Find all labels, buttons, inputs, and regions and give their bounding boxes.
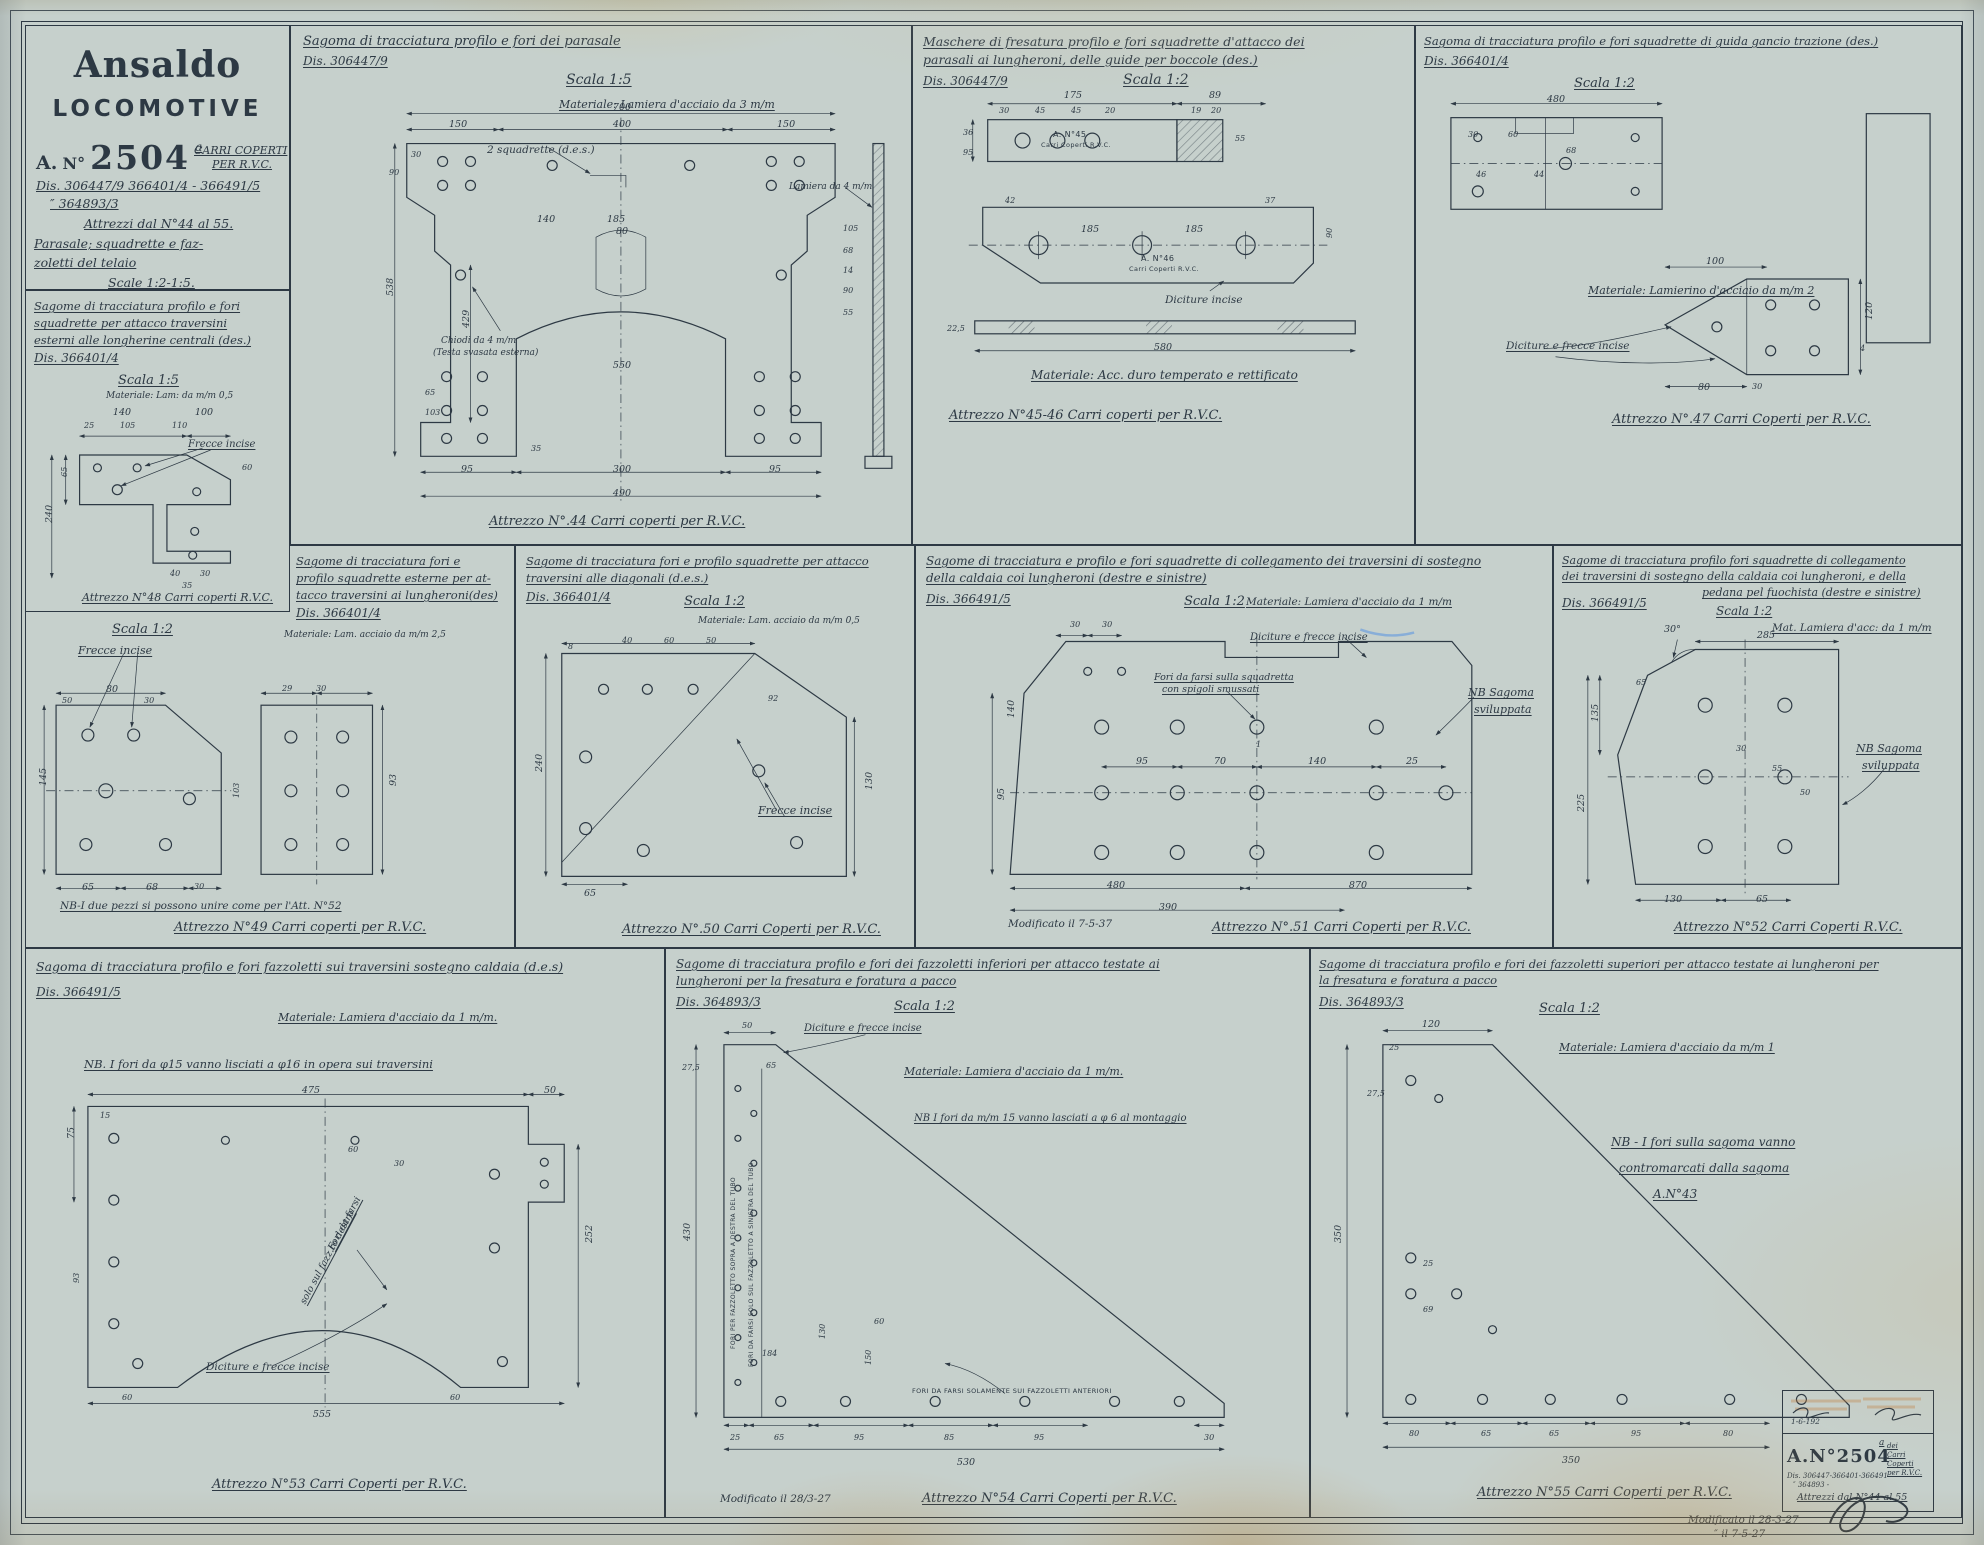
dim-label: 100 xyxy=(195,407,213,418)
dim-label: 35 xyxy=(182,581,192,590)
dim-label: 100 xyxy=(1706,256,1724,267)
dim-label: 50 xyxy=(1800,788,1810,797)
dim-label: 45 xyxy=(1035,106,1045,115)
annotation-text: parasali ai lungheroni, delle guide per … xyxy=(923,52,1258,67)
attrezzo-54-label: Attrezzo N°54 Carri Coperti per R.V.C. xyxy=(922,1491,1177,1506)
drawing-maschere xyxy=(913,26,1414,544)
annotation-text: Materiale: Lamiera d'acciaio da m/m 1 xyxy=(1559,1041,1775,1054)
dim-label: 140 xyxy=(113,407,131,418)
annotation-text: esterni alle longherine centrali (des.) xyxy=(34,333,251,347)
dim-label: 60 xyxy=(450,1393,460,1402)
panel-attrezzo-54: Sagome di tracciatura profilo e fori dei… xyxy=(665,948,1310,1518)
doc-class-line2: PER R.V.C. xyxy=(194,158,272,171)
title-block: Ansaldo LOCOMOTIVE A. N° 2504 a CARRI CO… xyxy=(25,25,290,290)
dim-label: 30 xyxy=(200,569,210,578)
dis-line-1: Dis. 306447/9 366401/4 - 366491/5 xyxy=(36,178,260,193)
annotation-text: Materiale: Lamiera d'acciaio da 3 m/m xyxy=(559,98,775,111)
dim-label: 93 xyxy=(388,774,399,786)
plate-outline xyxy=(546,644,854,885)
dim-label: 90 xyxy=(389,168,399,177)
dim-label: 105 xyxy=(843,224,858,233)
dim-label: 95 xyxy=(461,464,473,475)
plate-outline xyxy=(52,436,231,578)
annotation-text: Materiale: Lamiera d'acciaio da 1 m/m. xyxy=(278,1011,497,1024)
dim-label: 95 xyxy=(963,148,973,157)
annotation-text: la fresatura e foratura a pacco xyxy=(1319,973,1497,987)
attrezzo-49-label: Attrezzo N°49 Carri coperti per R.V.C. xyxy=(174,920,426,935)
dim-label: 30 xyxy=(1468,130,1478,139)
annotation-text: sviluppata xyxy=(1474,703,1532,716)
dim-label: 225 xyxy=(1576,794,1587,812)
annotation-text: Diciture e frecce incise xyxy=(206,1361,330,1373)
annotation-text: Lamiera da 4 m/m xyxy=(789,182,872,192)
annotation-text: Scala 1:2 xyxy=(1539,1001,1600,1016)
annotation-text: Dis. 366401/4 xyxy=(1424,54,1509,68)
annotation-text: Sagome di tracciatura fori e profilo squ… xyxy=(526,554,869,568)
dim-label: 80 xyxy=(1723,1429,1733,1438)
annotation-text: Scala 1:2 xyxy=(1184,594,1245,609)
dim-label: 55 xyxy=(843,308,853,317)
dim-label: 80 xyxy=(616,226,628,237)
dim-label: 68 xyxy=(146,882,158,893)
dim-label: 40 xyxy=(170,569,180,578)
dim-label: 30 xyxy=(394,1159,404,1168)
annotation-text: Scala 1:5 xyxy=(118,373,179,388)
panel-attrezzo-48: Sagome di tracciatura profilo e forisqua… xyxy=(25,290,290,612)
panel-attrezzo-47: Sagoma di tracciatura profilo e fori squ… xyxy=(1415,25,1962,545)
attrezzo-48-label: Attrezzo N°48 Carri coperti R.V.C. xyxy=(82,591,273,604)
dim-label: 30 xyxy=(144,696,154,705)
annotation-text: Chiodi da 4 m/m xyxy=(441,336,516,346)
dim-label: 50 xyxy=(544,1085,556,1096)
blank-bar xyxy=(1866,114,1930,343)
dim-label: 27,5 xyxy=(1367,1089,1385,1098)
annotation-text: Materiale: Lam: da m/m 0,5 xyxy=(106,391,233,401)
annotation-text: tacco traversini ai lungheroni(des) xyxy=(296,588,498,602)
annotation-text: (Testa svasata esterna) xyxy=(433,348,538,358)
annotation-text: Materiale: Lam. acciaio da m/m 2,5 xyxy=(284,630,446,640)
mod-line-1: Modificato il 28-3-27 xyxy=(1688,1514,1799,1528)
dim-label: 103 xyxy=(425,408,440,417)
panel-attrezzo-51: Sagome di tracciatura e profilo e fori s… xyxy=(915,545,1553,948)
dim-label: 90 xyxy=(1325,228,1334,238)
dim-label: 130 xyxy=(818,1324,827,1339)
side-section xyxy=(845,144,892,469)
annotation-text: Carri Coperti R.V.C. xyxy=(1129,265,1199,273)
dim-label: 475 xyxy=(302,1085,320,1096)
annotation-text: Scala 1:2 xyxy=(684,594,745,609)
annotation-text: Modificato il 28/3-27 xyxy=(720,1493,831,1505)
dim-label: 103 xyxy=(232,783,241,798)
annotation-text: Carri Coperti R.V.C. xyxy=(1041,141,1111,149)
annotation-text: Scala 1:2 xyxy=(894,999,955,1014)
annotation-text: Dis. 306447/9 xyxy=(303,54,388,68)
dim-label: 65 xyxy=(774,1433,784,1442)
plate-top xyxy=(1451,104,1662,210)
annotation-text: Sagome di tracciatura profilo e fori dei… xyxy=(1319,957,1879,971)
dim-label: 42 xyxy=(1005,196,1015,205)
annotation-text: pedana pel fuochista (destre e sinistre) xyxy=(1702,586,1921,599)
dim-label: 29 xyxy=(282,684,292,693)
annotation-text: Sagome di tracciatura profilo e fori xyxy=(34,299,240,313)
dim-label: 60 xyxy=(874,1317,884,1326)
annotation-text: FORI DA FARSI SOLAMENTE SUI FAZZOLETTI A… xyxy=(912,1387,1112,1395)
panel-attrezzo-44: Sagoma di tracciatura profilo e fori dei… xyxy=(290,25,912,545)
blue-pencil-mark xyxy=(1360,630,1414,636)
dim-label: 60 xyxy=(242,463,252,472)
dim-label: 46 xyxy=(1476,170,1486,179)
dim-label: 150 xyxy=(449,119,467,130)
plate-right xyxy=(261,693,382,884)
dim-label: 60 xyxy=(664,636,674,645)
dim-label: 252 xyxy=(584,1225,595,1243)
dim-label: 65 xyxy=(60,467,69,477)
annotation-text: NB Sagoma xyxy=(1468,686,1534,699)
annotation-text: Sagoma di tracciatura profilo e fori squ… xyxy=(1424,34,1878,48)
annotation-text: A.N°43 xyxy=(1653,1187,1697,1201)
dim-label: 80 xyxy=(106,684,118,695)
annotation-text: contromarcati dalla sagoma xyxy=(1619,1161,1789,1175)
panel-attrezzo-52: Sagome di tracciatura profilo fori squad… xyxy=(1553,545,1962,948)
dim-label: 30° xyxy=(1664,624,1681,635)
annotation-text: Sagoma di tracciatura profilo e fori dei… xyxy=(303,34,621,49)
dim-label: 700 xyxy=(613,102,631,113)
dim-label: 55 xyxy=(1772,764,1782,773)
annotation-text: Materiale: Acc. duro temperato e rettifi… xyxy=(1031,368,1298,382)
dim-label: 65 xyxy=(1756,894,1768,905)
dim-label: 150 xyxy=(777,119,795,130)
dim-label: 93 xyxy=(72,1273,81,1283)
dimension-lines xyxy=(395,114,835,497)
dim-label: 538 xyxy=(385,278,396,296)
dim-label: 60 xyxy=(1508,130,1518,139)
dim-label: 65 xyxy=(1481,1429,1491,1438)
dim-label: 65 xyxy=(1636,678,1646,687)
dim-label: 60 xyxy=(348,1145,358,1154)
dim-label: 30 xyxy=(1736,744,1746,753)
stamp-signatures: 1-6-192 xyxy=(1783,1391,1933,1434)
dim-label: 184 xyxy=(762,1349,777,1358)
annotation-text: sviluppata xyxy=(1862,759,1920,772)
dim-label: 390 xyxy=(1159,902,1177,913)
dim-label: 50 xyxy=(742,1021,752,1030)
dim-label: 240 xyxy=(534,754,545,772)
dim-label: 44 xyxy=(1534,170,1544,179)
dim-label: 95 xyxy=(1631,1429,1641,1438)
dim-label: 350 xyxy=(1562,1455,1580,1466)
annotation-text: Diciture e frecce incise xyxy=(804,1023,922,1034)
annotation-text: Scala 1:2 xyxy=(112,622,173,637)
plate-outline xyxy=(1588,640,1849,901)
dim-label: 350 xyxy=(1333,1225,1344,1243)
dim-label: 185 xyxy=(1081,224,1099,235)
annotation-text: Sagoma di tracciatura profilo e fori faz… xyxy=(36,959,563,974)
attrezzo-55-label: Attrezzo N°55 Carri Coperti per R.V.C. xyxy=(1477,1485,1732,1500)
dim-label: 30 xyxy=(1070,620,1080,629)
stamp-date: 1-6-192 xyxy=(1791,1417,1820,1426)
dim-label: 120 xyxy=(1864,302,1875,320)
dim-label: 30 xyxy=(194,882,204,891)
dim-label: 490 xyxy=(613,488,631,499)
drawing-fazzoletti-inferiori xyxy=(666,949,1309,1517)
annotation-text: Dis. 366491/5 xyxy=(36,985,121,999)
annotation-text: traversini alle diagonali (d.e.s.) xyxy=(526,571,708,585)
dim-label: 14 xyxy=(843,266,853,275)
dim-label: 4 xyxy=(1860,344,1865,353)
dim-label: 95 xyxy=(1034,1433,1044,1442)
annotation-text: Sagome di tracciatura fori e xyxy=(296,554,460,568)
panel-attrezzo-53: Sagoma di tracciatura profilo e fori faz… xyxy=(25,948,665,1518)
dim-label: 55 xyxy=(1235,134,1245,143)
modification-note: Modificato il 28-3-27 ″ il 7-5-27 xyxy=(1688,1514,1799,1541)
dim-label: 15 xyxy=(100,1111,110,1120)
dim-label: 80 xyxy=(1409,1429,1419,1438)
annotation-text: Diciture incise xyxy=(1165,294,1243,306)
gauge-bar-45 xyxy=(973,104,1266,162)
annotation-text: NB - I fori sulla sagoma vanno xyxy=(1611,1135,1795,1149)
dim-label: 400 xyxy=(613,119,631,130)
annotation-text: Dis. 366401/4 xyxy=(34,351,119,365)
annotation-text: squadrette per attacco traversini xyxy=(34,316,227,330)
annotation-text: Dis. 364893/3 xyxy=(1319,995,1404,1009)
annotation-text: Dis. 364893/3 xyxy=(676,995,761,1009)
dim-label: 85 xyxy=(944,1433,954,1442)
subject-line2: zoletti del telaio xyxy=(34,255,136,270)
blueprint-sheet: Sagoma di tracciatura profilo e fori dei… xyxy=(0,0,1984,1545)
dim-label: 75 xyxy=(66,1127,77,1139)
dim-label: 105 xyxy=(120,421,135,430)
annotation-text: Sagome di tracciatura profilo fori squad… xyxy=(1562,554,1906,567)
dim-label: 89 xyxy=(1209,90,1221,101)
attrezzo-44-label: Attrezzo N°.44 Carri coperti per R.V.C. xyxy=(489,514,745,529)
scale-note: Scale 1:2-1:5. xyxy=(108,275,195,290)
dim-label: 25 xyxy=(1389,1043,1399,1052)
dim-label: 65 xyxy=(425,388,435,397)
gauge-plate-46 xyxy=(969,207,1328,291)
dim-label: 30 xyxy=(1752,382,1762,391)
attrezzi-range: Attrezzi dal N°44 al 55. xyxy=(84,216,233,231)
annotation-text: Mat. Lamiera d'acc: da 1 m/m xyxy=(1772,622,1932,634)
dim-label: 120 xyxy=(1422,1019,1440,1030)
dim-label: 185 xyxy=(1185,224,1203,235)
dim-label: 185 xyxy=(607,214,625,225)
annotation-text: NB. I fori da φ15 vanno lisciati a φ16 i… xyxy=(84,1057,433,1071)
dim-label: 130 xyxy=(1664,894,1682,905)
annotation-text: profilo squadrette esterne per at- xyxy=(296,571,491,585)
doc-class-line1: CARRI COPERTI xyxy=(194,144,287,157)
stamp-doc-number: A.N°2504 xyxy=(1787,1446,1891,1467)
dim-label: 135 xyxy=(1590,704,1601,722)
dim-label: 36 xyxy=(963,128,973,137)
dim-label: 22,5 xyxy=(947,324,965,333)
dim-label: 240 xyxy=(44,505,55,523)
dim-label: 65 xyxy=(766,1061,776,1070)
annotation-text: Diciture e frecce incise xyxy=(1506,340,1630,352)
annotation-text: Dis. 366491/5 xyxy=(1562,596,1647,610)
signature-scribble xyxy=(1818,1478,1928,1545)
annotation-text: Maschere di fresatura profilo e fori squ… xyxy=(923,34,1305,49)
dim-label: 60 xyxy=(122,1393,132,1402)
company-name: Ansaldo xyxy=(74,44,242,86)
drawing-number: A. N° 2504 a xyxy=(36,138,202,177)
annotation-text: Dis. 366491/5 xyxy=(926,592,1011,606)
dim-label: 40 xyxy=(622,636,632,645)
annotation-text: della caldaia coi lungheroni (destre e s… xyxy=(926,571,1207,585)
annotation-text: Scala 1:2 xyxy=(1123,72,1189,88)
annotation-text: Materiale: Lamiera d'acciaio da 1 m/m xyxy=(1246,596,1452,608)
annotation-text: con spigoli smussati xyxy=(1162,684,1259,695)
annotation-text: Modificato il 7-5-37 xyxy=(1008,918,1112,930)
annotation-text: NB-I due pezzi si possono unire come per… xyxy=(60,900,342,912)
attrezzo-50-label: Attrezzo N°.50 Carri Coperti per R.V.C. xyxy=(622,922,881,937)
dim-label: 65 xyxy=(1549,1429,1559,1438)
dim-label: 8 xyxy=(568,642,573,651)
attrezzo-52-label: Attrezzo N°52 Carri Coperti R.V.C. xyxy=(1674,920,1902,935)
annotation-text: Sagome di tracciatura e profilo e fori s… xyxy=(926,554,1481,568)
dim-label: 25 xyxy=(730,1433,740,1442)
annotation-text: Dis. 366401/4 xyxy=(526,590,611,604)
dis-line-2: ″ 364893/3 xyxy=(50,196,119,211)
dim-label: 37 xyxy=(1265,196,1275,205)
annotation-text: A. N°45 xyxy=(1053,130,1086,139)
annotation-text: Fori da farsi sulla squadretta xyxy=(1154,672,1294,683)
dim-label: 35 xyxy=(531,444,541,453)
annotation-text: FORI PER FAZZOLETTO SOPRA A DESTRA DEL T… xyxy=(730,1177,737,1349)
company-division: LOCOMOTIVE xyxy=(52,96,262,122)
dim-label: 285 xyxy=(1757,630,1775,641)
annotation-text: dei traversini di sostegno della caldaia… xyxy=(1562,570,1906,583)
dim-label: 480 xyxy=(1107,880,1125,891)
annotation-text: Frecce incise xyxy=(78,644,152,657)
dim-label: 80 xyxy=(1698,382,1710,393)
dim-label: 30 xyxy=(999,106,1009,115)
plate-left xyxy=(44,693,231,888)
dim-label: 150 xyxy=(864,1350,873,1365)
annotation-text: Scala 1:2 xyxy=(1716,604,1772,618)
annotation-text: Materiale: Lamiera d'acciaio da 1 m/m. xyxy=(904,1065,1123,1078)
annotation-text: 2 squadrette (d.e.s.) xyxy=(487,144,595,156)
dim-label: 27,5 xyxy=(682,1063,700,1072)
dim-label: 30 xyxy=(411,150,421,159)
dim-label: 90 xyxy=(843,286,853,295)
annotation-text: Diciture e frecce incise xyxy=(1250,632,1368,643)
dim-label: 140 xyxy=(537,214,555,225)
annotation-text: Materiale: Lam. acciaio da m/m 0,5 xyxy=(698,616,860,626)
dim-label: 550 xyxy=(613,360,631,371)
annotation-text: NB I fori da m/m 15 vanno lasciati a φ 6… xyxy=(914,1113,1187,1124)
dim-label: 25 xyxy=(1406,756,1418,767)
dim-label: 70 xyxy=(1214,756,1226,767)
dim-label: 140 xyxy=(1006,700,1017,718)
panel-attrezzo-45-46: Maschere di fresatura profilo e fori squ… xyxy=(912,25,1415,545)
dim-label: 25 xyxy=(84,421,94,430)
subject-line1: Parasale; squadrette e faz- xyxy=(34,236,203,251)
dim-label: 145 xyxy=(38,768,49,786)
attrezzo-45-46-label: Attrezzo N°45-46 Carri coperti per R.V.C… xyxy=(949,408,1222,423)
annotation-text: FORI DA FARSI SOLO SUL FAZZOLETTO A SINI… xyxy=(748,1162,755,1367)
annotation-text: Frecce incise xyxy=(758,804,832,817)
dim-label: 95 xyxy=(854,1433,864,1442)
dim-label: 20 xyxy=(1211,106,1221,115)
annotation-text: A. N°46 xyxy=(1141,254,1174,263)
annotation-text: lungheroni per la fresatura e foratura a… xyxy=(676,974,956,988)
dim-label: 870 xyxy=(1349,880,1367,891)
dim-label: 68 xyxy=(843,246,853,255)
dim-label: 110 xyxy=(172,421,187,430)
panel-attrezzo-50: Sagome di tracciatura fori e profilo squ… xyxy=(515,545,915,948)
dim-label: 580 xyxy=(1154,342,1172,353)
dim-label: 30 xyxy=(1102,620,1112,629)
annotation-text: Scala 1:5 xyxy=(566,72,632,88)
dim-label: 50 xyxy=(62,696,72,705)
annotation-text: Sagome di tracciatura profilo e fori dei… xyxy=(676,957,1160,971)
dim-label: 30 xyxy=(1204,1433,1214,1442)
dim-label: 429 xyxy=(461,310,472,328)
dim-label: 555 xyxy=(313,1409,331,1420)
attrezzo-47-label: Attrezzo N°.47 Carri Coperti per R.V.C. xyxy=(1612,412,1871,427)
dim-label: 68 xyxy=(1566,146,1576,155)
dim-label: 95 xyxy=(996,788,1007,800)
annotation-text: Materiale: Lamierino d'acciaio da m/m 2 xyxy=(1588,284,1814,297)
stamp-doc-suffix: a xyxy=(1879,1438,1884,1448)
attrezzo-53-label: Attrezzo N°53 Carri Coperti per R.V.C. xyxy=(212,1477,467,1492)
dim-label: 480 xyxy=(1547,94,1565,105)
dim-label: 92 xyxy=(768,694,778,703)
annotation-text: Dis. 306447/9 xyxy=(923,74,1008,88)
plate-outline xyxy=(1347,1031,1849,1448)
dim-label: 95 xyxy=(769,464,781,475)
doc-number: 2504 xyxy=(90,138,190,177)
doc-prefix: A. xyxy=(36,152,57,174)
dim-label: 69 xyxy=(1423,1305,1433,1314)
annotation-text: Dis. 366401/4 xyxy=(296,606,381,620)
dim-label: 175 xyxy=(1064,90,1082,101)
dim-label: 45 xyxy=(1071,106,1081,115)
doc-class: CARRI COPERTI PER R.V.C. xyxy=(194,144,287,172)
dim-label: 50 xyxy=(706,636,716,645)
dim-label: 130 xyxy=(864,772,875,790)
dim-label: 25 xyxy=(1423,1259,1433,1268)
doc-no-label: N° xyxy=(62,154,85,173)
dim-label: 19 xyxy=(1191,106,1201,115)
dim-label: 530 xyxy=(957,1457,975,1468)
dim-label: 430 xyxy=(682,1223,693,1241)
annotation-text: Frecce incise xyxy=(188,439,255,450)
attrezzo-51-label: Attrezzo N°.51 Carri Coperti per R.V.C. xyxy=(1212,920,1471,935)
dim-label: 140 xyxy=(1308,756,1326,767)
dim-label: 65 xyxy=(584,888,596,899)
annotation-text: NB Sagoma xyxy=(1856,742,1922,755)
mod-line-2: ″ il 7-5-27 xyxy=(1688,1528,1799,1542)
annotation-text: Scala 1:2 xyxy=(1574,76,1635,91)
dim-label: 1 xyxy=(1256,740,1261,749)
dim-label: 300 xyxy=(613,464,631,475)
dim-label: 65 xyxy=(82,882,94,893)
dim-label: 20 xyxy=(1105,106,1115,115)
stamp-doc-class: deiCarri Copertiper R.V.C. xyxy=(1887,1442,1933,1478)
dim-label: 30 xyxy=(316,684,326,693)
dim-label: 95 xyxy=(1136,756,1148,767)
